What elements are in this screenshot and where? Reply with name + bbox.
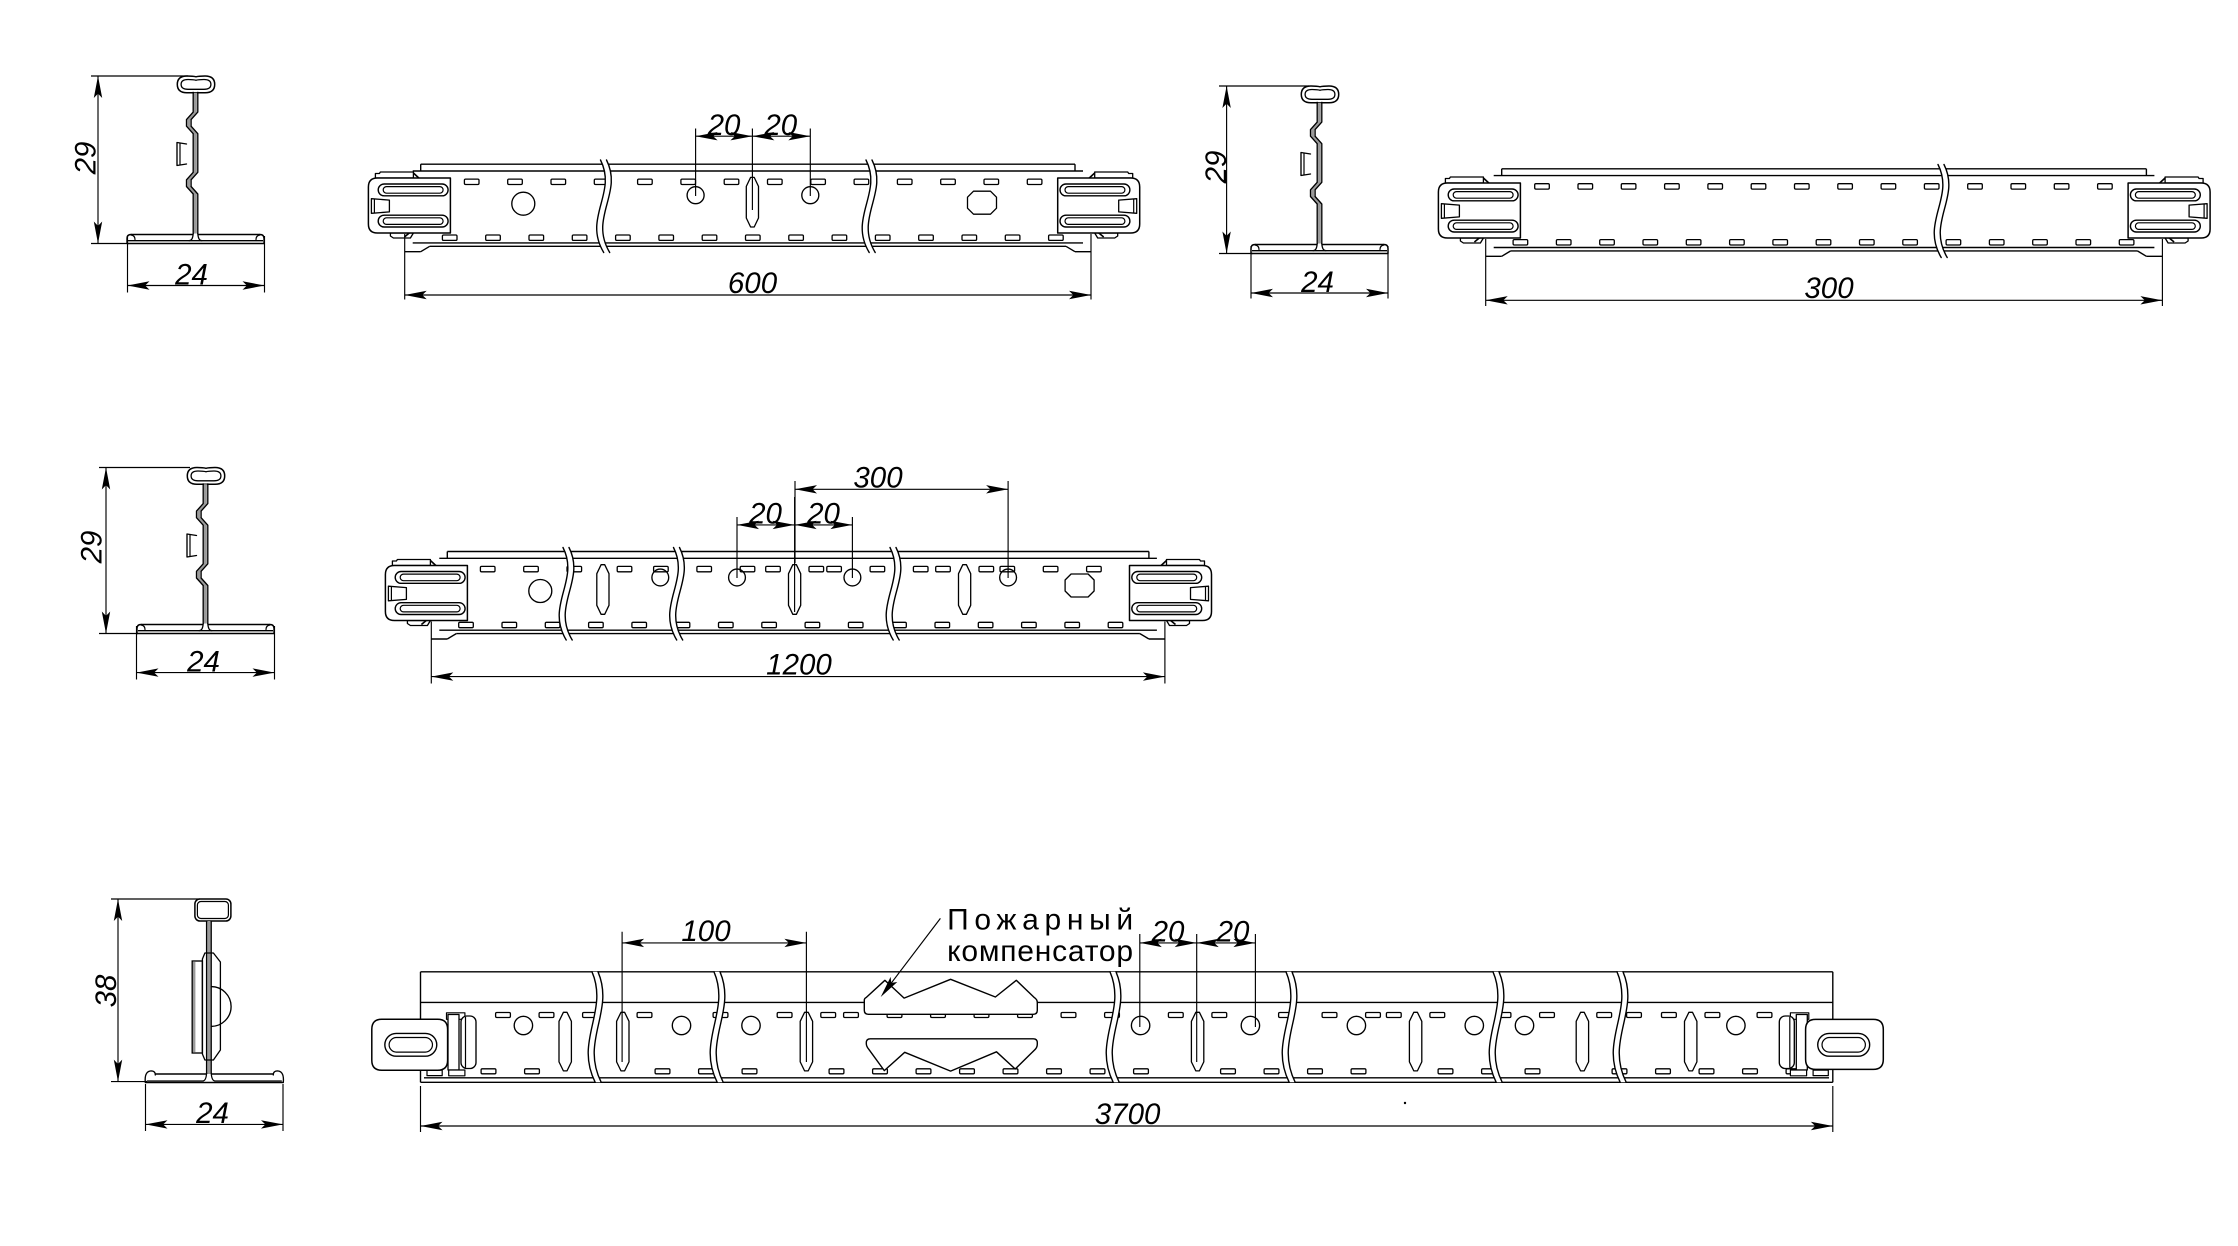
svg-text:600: 600 [728, 267, 778, 300]
svg-text:100: 100 [681, 915, 731, 948]
svg-text:24: 24 [195, 1097, 229, 1130]
svg-text:20: 20 [1216, 915, 1250, 948]
svg-text:3700: 3700 [1095, 1098, 1161, 1131]
svg-text:20: 20 [806, 497, 840, 530]
svg-text:24: 24 [186, 645, 220, 678]
svg-text:20: 20 [1151, 915, 1185, 948]
svg-text:29: 29 [1200, 151, 1233, 185]
svg-text:компенсатор: компенсатор [947, 935, 1133, 968]
svg-text:20: 20 [748, 497, 782, 530]
svg-text:24: 24 [1300, 266, 1334, 299]
svg-text:20: 20 [763, 109, 797, 142]
svg-text:29: 29 [76, 531, 109, 565]
svg-text:29: 29 [70, 142, 103, 176]
svg-text:38: 38 [90, 974, 123, 1007]
svg-text:300: 300 [853, 461, 903, 494]
svg-text:24: 24 [174, 258, 208, 291]
svg-text:20: 20 [707, 109, 741, 142]
svg-text:300: 300 [1804, 272, 1854, 305]
svg-text:1200: 1200 [766, 649, 832, 682]
